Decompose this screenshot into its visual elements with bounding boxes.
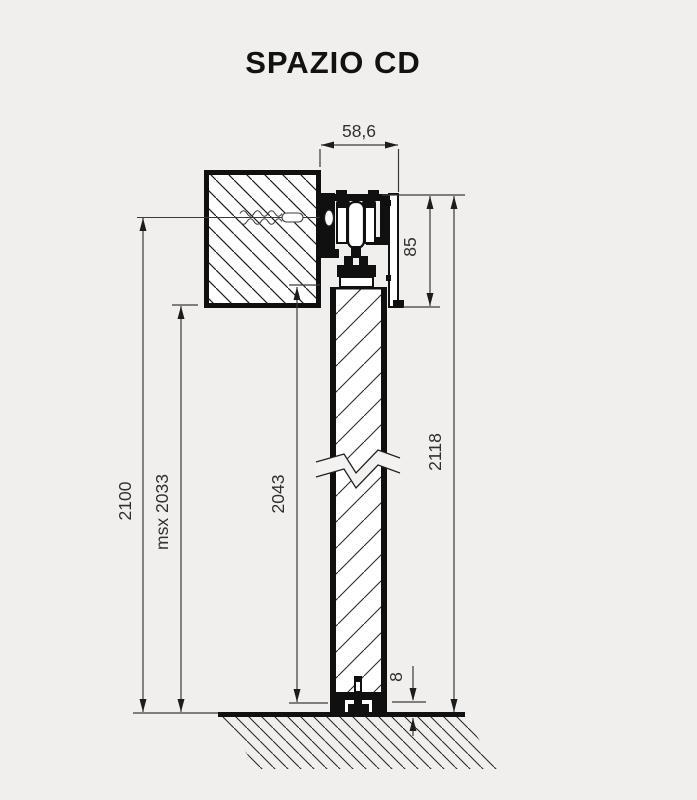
hanger-bracket: [337, 246, 376, 287]
dim-label-overall-height: 2100: [115, 481, 135, 520]
dim-label-door-panel-height: 2043: [268, 475, 288, 514]
screw-tip: [325, 210, 334, 226]
dim-label-track-height: 85: [400, 237, 420, 256]
dimension-overall-height: 2100: [115, 218, 218, 713]
dimension-door-panel-height: 2043: [268, 285, 328, 703]
floor-line: [218, 712, 465, 717]
door-panel: [330, 287, 387, 699]
page-title: SPAZIO CD: [245, 45, 421, 80]
dim-label-max-passage-height: msx 2033: [152, 474, 172, 550]
dimension-max-passage-height: msx 2033: [152, 305, 198, 712]
dim-label-overall-height-with-track: 2118: [425, 433, 445, 471]
technical-drawing-canvas: SPAZIO CD: [0, 0, 697, 800]
page: SPAZIO CD: [0, 0, 697, 800]
roller-carriage: [337, 202, 375, 248]
dim-label-track-width: 58,6: [342, 121, 376, 141]
dim-label-floor-gap: 8: [386, 672, 406, 682]
wall-header-section: [204, 170, 321, 308]
dimension-track-width: 58,6: [320, 121, 399, 192]
floor-hatch: [222, 717, 499, 769]
